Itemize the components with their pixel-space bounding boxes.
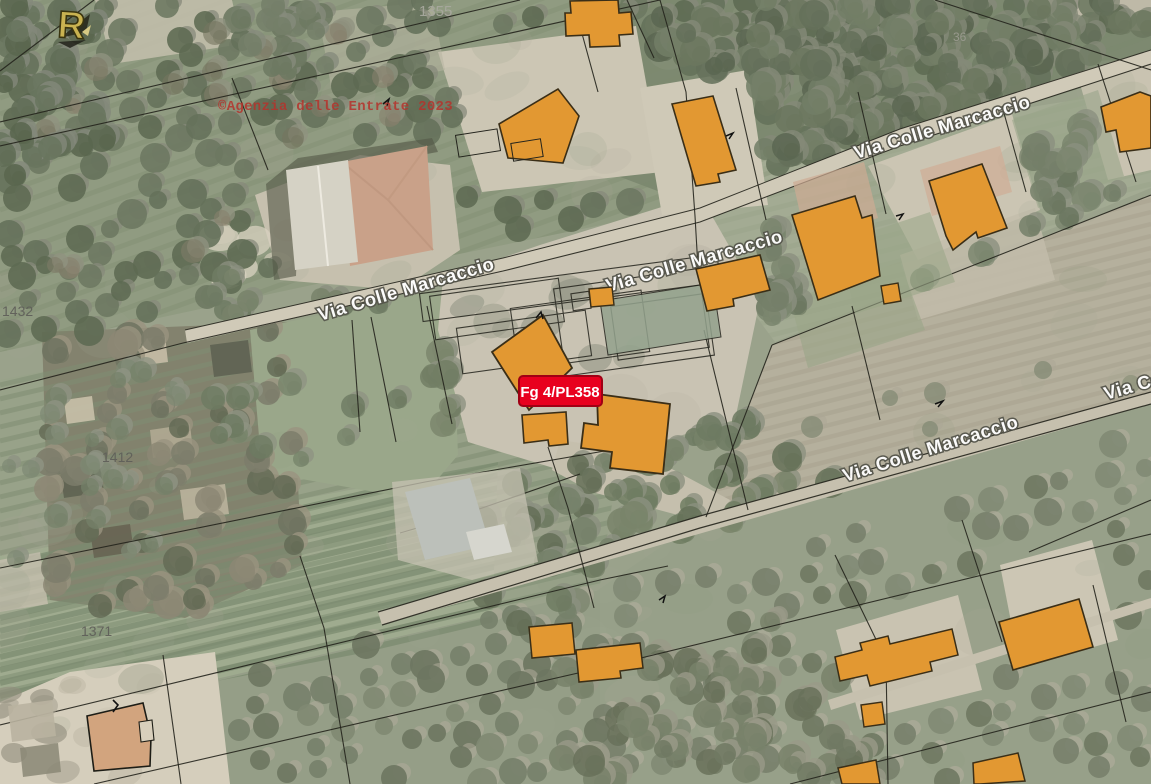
svg-text:1412: 1412 xyxy=(102,449,133,465)
svg-text:1371: 1371 xyxy=(81,623,112,639)
svg-text:©Agenzia delle Entrate 2023: ©Agenzia delle Entrate 2023 xyxy=(218,99,453,115)
svg-text:R: R xyxy=(56,4,86,48)
svg-text:1432: 1432 xyxy=(2,303,33,319)
svg-text:36: 36 xyxy=(953,30,967,44)
svg-text:Fg 4/PL358: Fg 4/PL358 xyxy=(520,384,599,401)
svg-text:1355: 1355 xyxy=(419,3,452,20)
